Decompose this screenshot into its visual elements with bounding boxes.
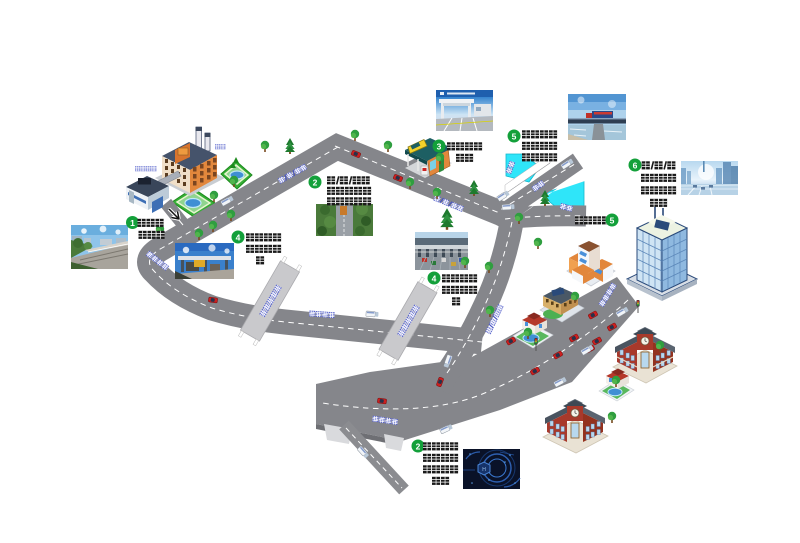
svg-text:1: 1 [130,218,135,228]
svg-text:5: 5 [512,132,517,142]
svg-text:3: 3 [437,142,442,152]
svg-text:6: 6 [633,161,638,171]
svg-text:4: 4 [236,233,241,243]
svg-text:2: 2 [416,442,421,452]
svg-text:2: 2 [313,178,318,188]
svg-text:5: 5 [610,216,615,226]
svg-text:H: H [482,467,486,473]
svg-text:4: 4 [432,274,437,284]
